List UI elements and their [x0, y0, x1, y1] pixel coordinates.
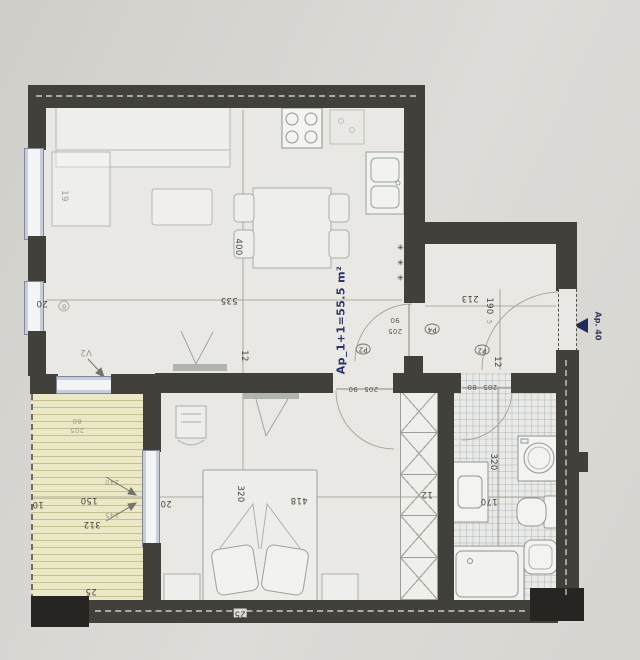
dim-label: 150	[80, 495, 97, 505]
entry-door	[558, 289, 577, 351]
window-left-1	[24, 148, 44, 240]
dim-label: 19	[59, 190, 69, 201]
dim-label: 205	[70, 426, 84, 434]
dim-label: P2	[474, 345, 489, 356]
balcony-corner-block	[31, 596, 89, 627]
wall-bathroom-top	[511, 373, 558, 393]
bed	[203, 470, 317, 601]
wall-left-lower	[28, 331, 46, 376]
toilet	[517, 496, 557, 528]
apartment-title: Ap_1+1=55.5 m²	[335, 266, 348, 374]
kitchen-counter	[330, 110, 364, 144]
bathroom-sink	[524, 540, 557, 574]
shower-tray	[451, 546, 524, 602]
radiator-icon: ✳ ✳ ✳	[396, 244, 405, 284]
wall-left-mid	[28, 236, 46, 283]
dim-label: 190	[484, 297, 494, 314]
wall-dash-bottom	[95, 610, 525, 612]
washing-machine	[518, 436, 560, 481]
dim-label: 205	[364, 385, 378, 393]
dim-label: P2	[355, 344, 370, 355]
nightstand-left	[164, 574, 200, 601]
dim-label: 25	[85, 586, 96, 596]
dim-label: 312	[83, 519, 100, 529]
tv-living	[173, 331, 227, 371]
balcony-door-living	[56, 376, 115, 394]
bedroom-balcony-window	[142, 450, 160, 547]
wall-living-bottom-a	[30, 374, 58, 394]
dim-label: 25	[233, 609, 246, 618]
dim-label: 205	[483, 383, 497, 391]
dim-label: 205	[388, 327, 402, 335]
dim-label: 12	[492, 356, 502, 367]
wall-living-bottom-b	[111, 374, 161, 394]
wall-right-upper	[556, 243, 577, 291]
entry-label: Ap. 40	[594, 312, 603, 341]
wall-bedroom-left-b	[143, 543, 161, 602]
dim-label: 400	[233, 238, 243, 255]
cooktop	[282, 108, 322, 148]
dim-label: 60	[72, 417, 82, 425]
wall-right-lower	[556, 350, 579, 602]
dim-label: 320	[235, 485, 245, 502]
dining-table	[234, 188, 349, 268]
dim-label: 12	[239, 350, 249, 361]
dim-label: P4	[424, 324, 439, 335]
wall-bedroom-left-a	[143, 392, 161, 452]
wall-bathroom-left	[438, 391, 454, 602]
floor-plan: Ap_1+1=55.5 m² Ap. 40 ✳ ✳ ✳ 53540020819V…	[0, 0, 640, 660]
dim-label: 213	[461, 293, 478, 303]
tv-bedroom	[243, 392, 299, 436]
dim-label: 5	[485, 320, 493, 325]
dim-label: 320	[488, 453, 498, 470]
dim-label: 418	[290, 495, 307, 505]
wall-living-right	[404, 85, 425, 303]
dim-label: 12	[421, 489, 432, 499]
wall-dash-top	[36, 95, 416, 97]
wall-stub-hall	[404, 356, 423, 375]
dim-label: 80	[467, 383, 477, 391]
dim-label: 90	[390, 316, 400, 324]
wall-bedroom-top	[155, 373, 333, 393]
dim-label: 8	[59, 301, 70, 312]
dim-label: 535	[220, 295, 237, 305]
window-left-2	[24, 281, 44, 335]
dim-label: 20	[160, 498, 171, 508]
bathroom-corner-block	[530, 588, 584, 621]
dim-label: 170	[480, 496, 497, 506]
dim-label: 10	[32, 499, 43, 509]
kitchen-sink	[366, 152, 404, 214]
dim-label: 90	[348, 385, 358, 393]
nightstand-right	[322, 574, 358, 601]
dim-label: V2	[80, 347, 92, 357]
dim-label: 145	[105, 511, 119, 519]
coffee-table	[152, 189, 212, 225]
dim-label: 20	[36, 298, 47, 308]
wall-right-bump	[577, 452, 588, 472]
vanity-basin	[452, 462, 488, 522]
dim-label: 240	[105, 478, 119, 486]
wall-dash-right	[565, 360, 567, 595]
bedroom-stool	[176, 406, 206, 445]
wall-bedroom-top-right	[393, 373, 461, 393]
wall-hall-top	[425, 222, 577, 244]
